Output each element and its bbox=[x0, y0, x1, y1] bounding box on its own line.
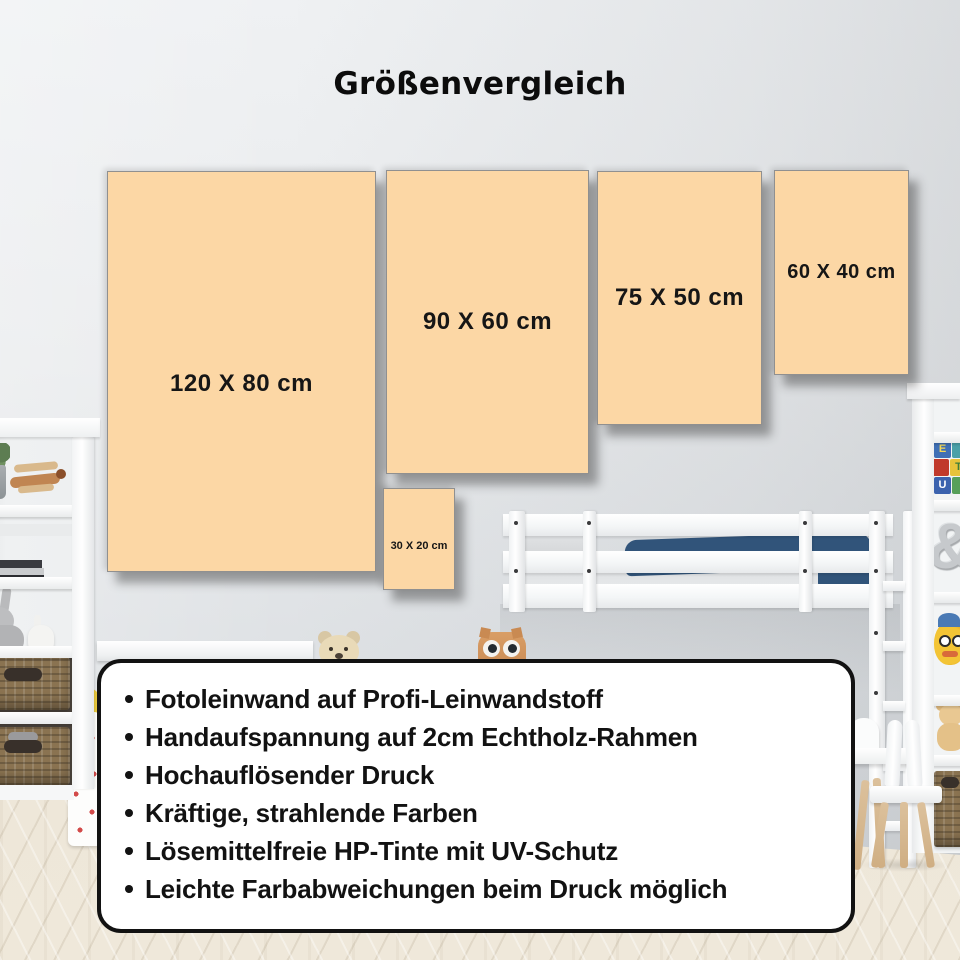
kids-chair bbox=[868, 720, 942, 870]
size-label: 60 X 40 cm bbox=[787, 261, 895, 284]
shelf-board bbox=[932, 695, 960, 706]
features-card: Fotoleinwand auf Profi-Leinwandstoff Han… bbox=[97, 659, 855, 933]
shelf-board bbox=[0, 505, 74, 517]
alphabet-block: E bbox=[934, 441, 951, 458]
teddy-eye bbox=[329, 647, 333, 651]
screw-dot bbox=[587, 521, 591, 525]
toy-airplane-propeller bbox=[56, 469, 66, 479]
shelf-board bbox=[0, 646, 74, 658]
size-swatch-120x80: 120 X 80 cm bbox=[107, 171, 376, 572]
feature-text: Fotoleinwand auf Profi-Leinwandstoff bbox=[145, 684, 603, 715]
bed-rail bbox=[503, 514, 893, 536]
shelf-board bbox=[0, 577, 74, 589]
fish-eye bbox=[952, 635, 960, 647]
screw-dot bbox=[874, 521, 878, 525]
chair-leg bbox=[900, 802, 908, 868]
size-label: 120 X 80 cm bbox=[170, 370, 313, 398]
owl-ear-tuft bbox=[479, 627, 491, 639]
screw-dot bbox=[874, 569, 878, 573]
screw-dot bbox=[587, 569, 591, 573]
bullet-dot bbox=[125, 809, 133, 817]
fish-plush bbox=[934, 621, 960, 665]
owl-pupil bbox=[508, 644, 517, 653]
basket-handle bbox=[4, 668, 42, 681]
fish-mouth bbox=[942, 651, 958, 657]
shelf-compartment bbox=[0, 536, 72, 577]
feature-item: Hochauflösender Druck bbox=[125, 756, 831, 794]
shelf-top-molding bbox=[907, 383, 960, 399]
feature-text: Lösemittelfreie HP-Tinte mit UV-Schutz bbox=[145, 836, 618, 867]
bed-post bbox=[799, 511, 812, 612]
feature-text: Kräftige, strahlende Farben bbox=[145, 798, 478, 829]
wicker-basket bbox=[0, 657, 70, 710]
screw-dot bbox=[803, 569, 807, 573]
alphabet-block bbox=[952, 441, 960, 458]
shelf-compartment bbox=[0, 589, 72, 652]
feature-text: Leichte Farbabweichungen beim Druck mögl… bbox=[145, 874, 727, 905]
chair-seat bbox=[870, 786, 942, 803]
size-label: 75 X 50 cm bbox=[615, 284, 744, 312]
feature-text: Handaufspannung auf 2cm Echtholz-Rahmen bbox=[145, 722, 698, 753]
toy-airplane-wing bbox=[14, 461, 59, 473]
block-letter: U bbox=[939, 479, 947, 491]
size-swatch-60x40: 60 X 40 cm bbox=[774, 170, 909, 375]
feature-item: Handaufspannung auf 2cm Echtholz-Rahmen bbox=[125, 718, 831, 756]
block-letter: T bbox=[955, 461, 960, 473]
screw-dot bbox=[514, 569, 518, 573]
feature-item: Lösemittelfreie HP-Tinte mit UV-Schutz bbox=[125, 832, 831, 870]
ladder-rung bbox=[883, 701, 905, 711]
ladder-rung bbox=[883, 641, 905, 651]
bed-post bbox=[583, 511, 596, 612]
shelf-board bbox=[932, 500, 960, 511]
bullet-dot bbox=[125, 847, 133, 855]
size-swatch-90x60: 90 X 60 cm bbox=[386, 170, 589, 474]
plant-pot bbox=[0, 465, 6, 499]
feature-item: Kräftige, strahlende Farben bbox=[125, 794, 831, 832]
bed-base-board bbox=[503, 584, 893, 608]
screw-dot bbox=[803, 521, 807, 525]
bullet-dot bbox=[125, 771, 133, 779]
owl-plush bbox=[478, 632, 526, 662]
screw-dot bbox=[874, 691, 878, 695]
feature-item: Leichte Farbabweichungen beim Druck mögl… bbox=[125, 870, 831, 908]
alphabet-block: U bbox=[934, 477, 951, 494]
size-label: 30 X 20 cm bbox=[391, 540, 448, 552]
bookshelf-left bbox=[0, 418, 96, 800]
dresser-top bbox=[97, 641, 313, 661]
feature-item: Fotoleinwand auf Profi-Leinwandstoff bbox=[125, 680, 831, 718]
basket-handle bbox=[4, 740, 42, 753]
screw-dot bbox=[514, 521, 518, 525]
bullet-dot bbox=[125, 885, 133, 893]
fish-fin bbox=[938, 613, 960, 627]
basket-handle bbox=[941, 777, 959, 788]
bed-post bbox=[509, 511, 525, 612]
shelf-base bbox=[0, 785, 74, 800]
block-letter: E bbox=[939, 443, 946, 455]
chair-ear-slat bbox=[884, 720, 903, 791]
owl-pupil bbox=[488, 644, 497, 653]
book-stack bbox=[0, 560, 42, 568]
chair-ear-slat bbox=[904, 720, 923, 791]
chair-leg bbox=[917, 802, 935, 868]
shelf-board bbox=[932, 592, 960, 603]
shelf-board bbox=[0, 712, 74, 724]
book-stack bbox=[0, 568, 44, 575]
size-label: 90 X 60 cm bbox=[423, 308, 552, 336]
shelf-post bbox=[72, 437, 94, 789]
bullet-dot bbox=[125, 695, 133, 703]
size-comparison-infographic: E T U & bbox=[0, 0, 960, 960]
page-title: Größenvergleich bbox=[0, 66, 960, 102]
ladder-rung bbox=[883, 581, 905, 591]
chair-leg bbox=[871, 802, 889, 868]
shelf-board bbox=[932, 432, 960, 443]
alphabet-block bbox=[952, 477, 960, 494]
bullet-dot bbox=[125, 733, 133, 741]
alphabet-block bbox=[932, 459, 949, 476]
alphabet-block: T bbox=[950, 459, 960, 476]
bed-rail bbox=[503, 551, 893, 573]
teddy-eye bbox=[344, 647, 348, 651]
screw-dot bbox=[874, 631, 878, 635]
owl-ear-tuft bbox=[511, 627, 523, 639]
shelf-top-molding bbox=[0, 418, 100, 437]
fish-eye bbox=[939, 635, 951, 647]
size-swatch-75x50: 75 X 50 cm bbox=[597, 171, 762, 425]
features-list: Fotoleinwand auf Profi-Leinwandstoff Han… bbox=[125, 680, 831, 908]
size-swatch-30x20: 30 X 20 cm bbox=[383, 488, 455, 590]
feature-text: Hochauflösender Druck bbox=[145, 760, 434, 791]
